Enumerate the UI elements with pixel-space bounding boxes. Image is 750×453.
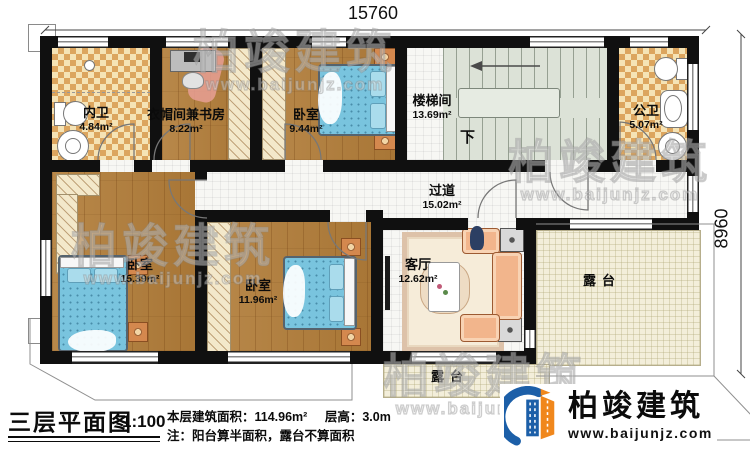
room-label-stairwell: 楼梯间 13.69m² — [412, 94, 451, 121]
light-fixture-icon — [84, 60, 95, 71]
room-label-cloak-study: 衣帽间兼书房 8.22m² — [147, 108, 225, 135]
room-area: 8.22m² — [147, 123, 225, 135]
wall — [195, 210, 330, 222]
terrace-east-floor — [536, 230, 701, 366]
wall — [195, 218, 207, 351]
room-label-terrace-east: 露台 — [583, 274, 621, 289]
blanket — [68, 330, 116, 352]
window — [530, 36, 604, 48]
pillow — [370, 103, 386, 129]
side-table — [498, 318, 522, 342]
wall — [656, 160, 699, 172]
wall — [150, 36, 162, 160]
dimension-height: 8960 — [712, 208, 733, 248]
bed — [283, 256, 357, 330]
bed-headboard — [344, 258, 355, 326]
room-name: 露台 — [431, 370, 469, 385]
plan-note: 注：阳台算半面积，露台不算面积 — [167, 425, 355, 444]
room-area: 9.44m² — [289, 123, 322, 135]
nightstand — [341, 328, 361, 346]
floor-height-text: 层高：3.0m — [325, 410, 391, 424]
table-decor — [437, 284, 442, 289]
company-website: www.baijunjz.com — [568, 425, 713, 441]
pillow — [94, 268, 118, 283]
wall — [250, 36, 262, 160]
room-name: 露台 — [583, 274, 621, 289]
wall — [371, 218, 468, 230]
window — [570, 218, 652, 230]
room-name: 衣帽间兼书房 — [147, 108, 225, 123]
wall — [371, 210, 383, 351]
wall — [40, 160, 100, 172]
window — [58, 36, 108, 48]
wall — [524, 348, 536, 364]
sofa-seat — [460, 314, 500, 342]
room-name: 客厅 — [398, 258, 437, 273]
room-area: 13.69m² — [412, 109, 451, 121]
plan-title: 三层平面图 — [8, 403, 133, 437]
title-underline — [8, 436, 160, 442]
sofa-seat — [492, 252, 522, 320]
blanket — [283, 265, 305, 317]
wall — [588, 160, 620, 172]
room-area: 12.62m² — [398, 273, 437, 285]
bed-headboard — [60, 257, 124, 268]
closet — [207, 222, 231, 353]
company-logo-text: 柏竣建筑 www.baijunjz.com — [568, 392, 713, 441]
closet — [228, 48, 252, 160]
wall — [607, 36, 619, 160]
toilet-icon — [654, 57, 678, 81]
room-name: 卧室 — [289, 108, 322, 123]
wall — [323, 160, 545, 172]
room-label-inner-bath: 内卫 4.84m² — [79, 106, 112, 133]
room-name: 卧室 — [120, 258, 159, 273]
wall — [516, 218, 570, 230]
wall — [687, 36, 699, 64]
window — [312, 36, 346, 48]
room-name: 楼梯间 — [412, 94, 451, 109]
room-area: 15.39m² — [120, 273, 159, 285]
side-table — [500, 228, 524, 252]
room-area: 5.07m² — [629, 119, 662, 131]
wall — [40, 36, 52, 240]
nightstand — [341, 238, 361, 256]
room-name: 公卫 — [629, 104, 662, 119]
pillow — [67, 268, 91, 283]
bed — [318, 64, 399, 136]
company-logo: 柏竣建筑 www.baijunjz.com — [500, 384, 717, 448]
table-decor — [443, 290, 448, 295]
pillow — [329, 264, 344, 290]
tv-icon — [385, 256, 390, 310]
dimension-width: 15760 — [348, 3, 398, 24]
plan-info-line: 本层建筑面积：114.96m² 层高：3.0m — [167, 406, 405, 425]
floor-area-text: 本层建筑面积：114.96m² — [167, 410, 307, 424]
wall — [652, 218, 699, 230]
room-label-bedroom-west: 卧室 15.39m² — [120, 258, 159, 285]
room-label-living-room: 客厅 12.62m² — [398, 258, 437, 285]
room-label-bedroom-north: 卧室 9.44m² — [289, 108, 322, 135]
stairs-down-label: 下 — [460, 126, 475, 147]
window — [228, 351, 350, 364]
person-figure — [470, 226, 484, 250]
window — [72, 351, 158, 364]
room-name: 卧室 — [239, 279, 278, 294]
window — [687, 176, 699, 212]
pillow — [370, 71, 386, 97]
wall — [350, 351, 412, 364]
window — [687, 64, 699, 130]
closet — [56, 174, 100, 196]
plan-scale: 1:100 — [122, 412, 165, 432]
window — [412, 351, 496, 364]
room-label-public-bath: 公卫 5.07m² — [629, 104, 662, 131]
wall — [524, 230, 536, 330]
room-label-terrace-south: 露台 — [431, 370, 469, 385]
wall — [346, 36, 530, 48]
room-area: 11.96m² — [239, 294, 278, 306]
room-area: 4.84m² — [79, 121, 112, 133]
company-logo-icon — [504, 386, 562, 446]
window — [524, 330, 536, 348]
stairs-landing — [458, 88, 560, 118]
desk-chair — [182, 72, 204, 89]
room-name: 过道 — [422, 184, 461, 199]
wall — [195, 160, 207, 180]
closet — [262, 48, 286, 160]
sink-icon — [65, 138, 81, 154]
room-area: 15.02m² — [422, 199, 461, 211]
wall — [134, 160, 152, 172]
wall — [395, 36, 407, 160]
room-name: 内卫 — [79, 106, 112, 121]
floor-plan-canvas: 内卫 4.84m² 衣帽间兼书房 8.22m² 卧室 9.44m² 楼梯间 13… — [0, 0, 750, 453]
window — [40, 240, 52, 296]
company-name: 柏竣建筑 — [568, 392, 713, 422]
bed — [58, 255, 128, 352]
sink-icon — [665, 139, 680, 154]
room-label-bedroom-south: 卧室 11.96m² — [239, 279, 278, 306]
computer-monitor — [184, 52, 200, 62]
wall — [228, 36, 312, 48]
shower-partition — [52, 92, 150, 93]
nightstand — [128, 322, 148, 342]
room-label-hallway: 过道 15.02m² — [422, 184, 461, 211]
wall — [158, 351, 228, 364]
window — [166, 36, 228, 48]
pillow — [329, 296, 344, 322]
window — [630, 36, 668, 48]
bathtub-icon — [664, 95, 682, 122]
wall — [40, 351, 72, 364]
